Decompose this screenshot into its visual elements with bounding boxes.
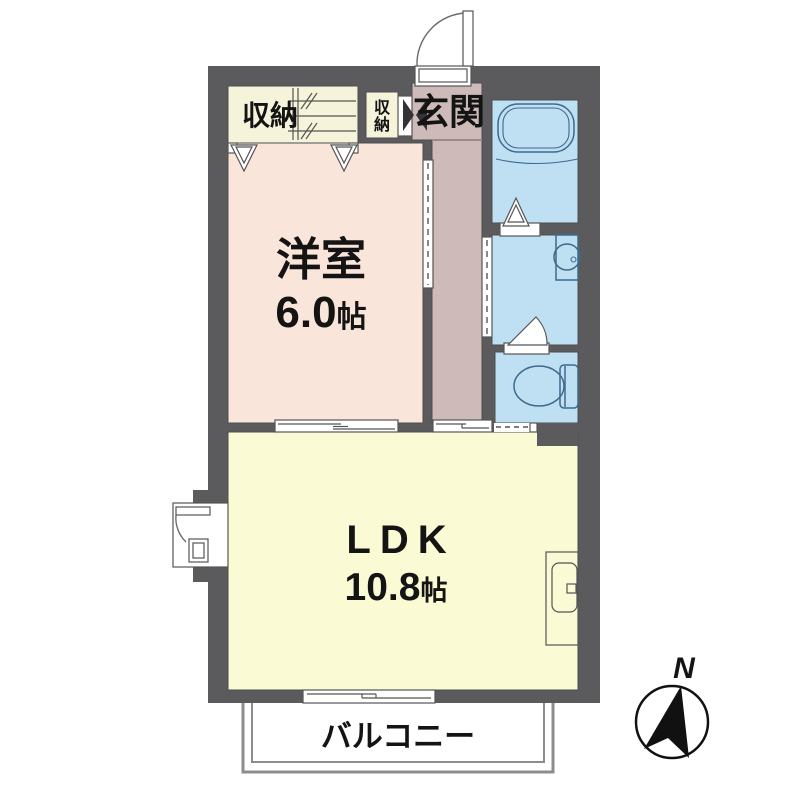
western-room-sliding-door-icon (423, 160, 433, 288)
entrance-door-icon (415, 11, 473, 86)
left-bay-wall-top (193, 490, 228, 504)
floorplan-svg: N 収納 収 納 玄関 洋室 6.0帖 LDK 10.8帖 バルコニー (0, 0, 800, 800)
balcony-label: バルコニー (321, 719, 475, 754)
closet-small-label-char1: 収 (374, 99, 391, 117)
left-bay-wall-bottom (193, 567, 228, 582)
ldk-label: LDK (346, 518, 455, 562)
compass-north-label: N (673, 652, 696, 685)
hallway-floor (432, 140, 482, 422)
western-ldk-sliding-door-icon (275, 420, 398, 432)
ldk-corner-wall (537, 423, 578, 446)
closet-main-label: 収納 (242, 99, 298, 131)
western-room-label: 洋室 (276, 234, 366, 285)
meter-box-door-leaf (176, 507, 210, 515)
closet-small-label-char2: 納 (374, 115, 390, 134)
meter-box (173, 503, 228, 567)
entrance-label: 玄関 (413, 91, 485, 132)
balcony-sliding-window-icon (303, 690, 435, 703)
toilet-ldk-dashed-opening (494, 423, 537, 432)
compass: N (636, 652, 708, 758)
floorplan-canvas: N 収納 収 納 玄関 洋室 6.0帖 LDK 10.8帖 バルコニー (0, 0, 800, 800)
hallway-ldk-sliding-door-icon (433, 420, 492, 432)
washroom-sliding-door-icon (482, 237, 492, 337)
